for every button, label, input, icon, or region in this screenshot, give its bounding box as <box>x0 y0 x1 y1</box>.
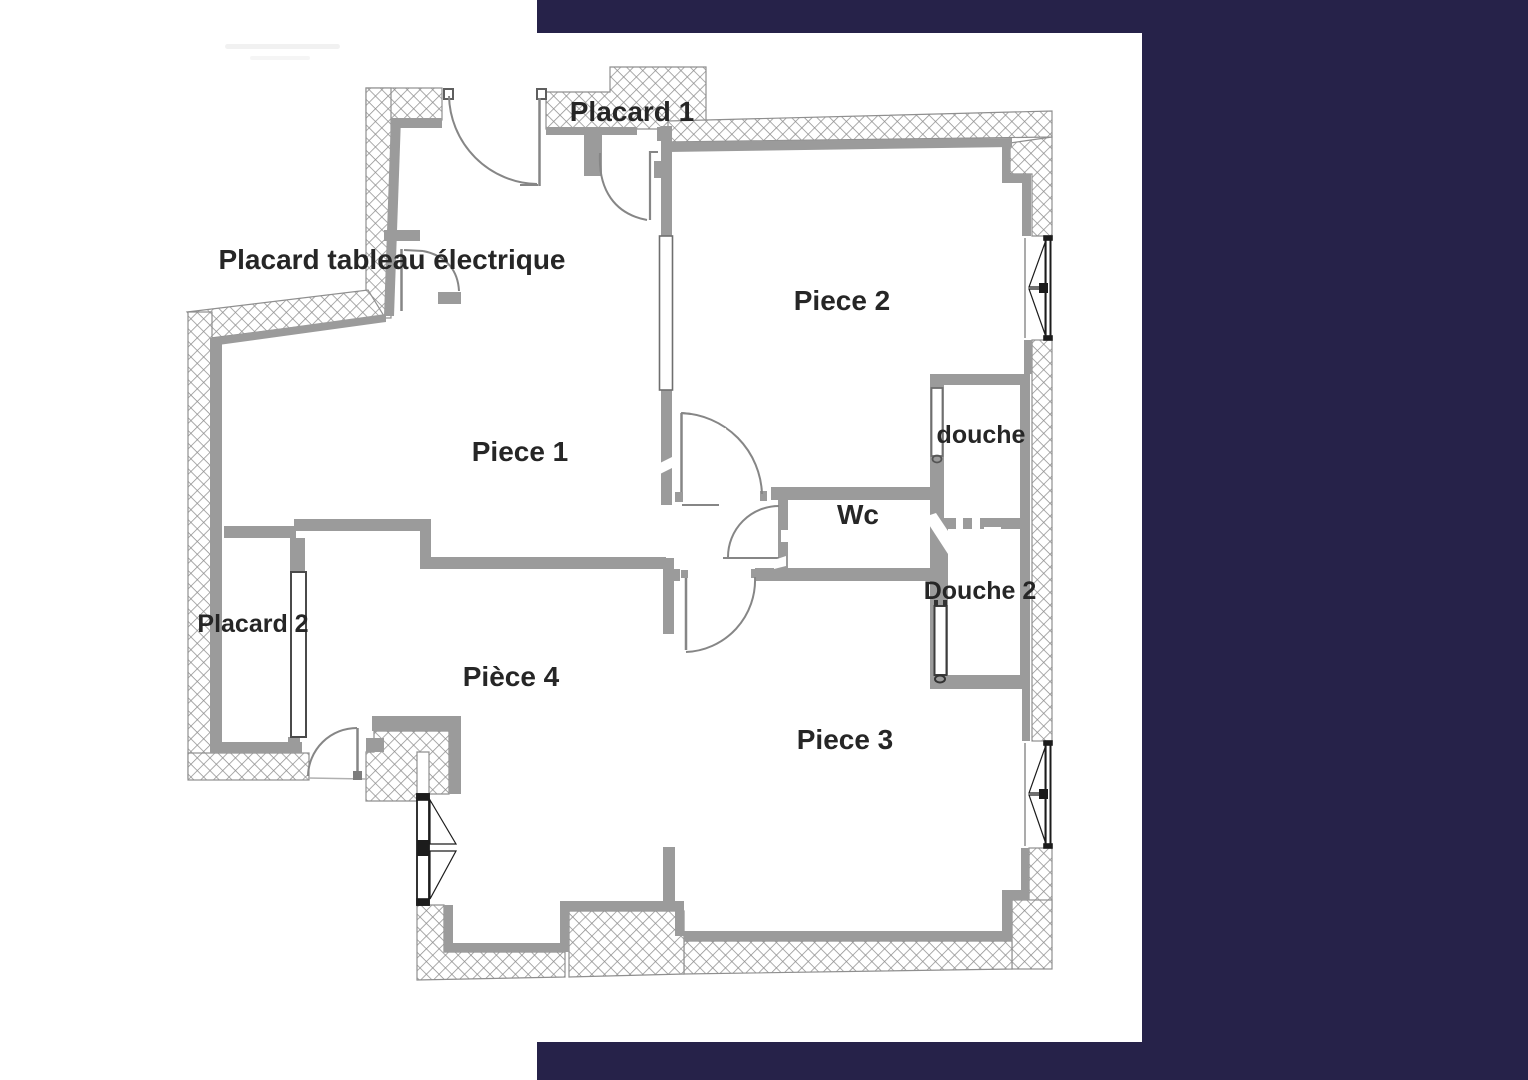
svg-text:Placard tableau électrique: Placard tableau électrique <box>218 244 565 275</box>
svg-text:Piece 1: Piece 1 <box>472 436 569 467</box>
svg-text:Placard 1: Placard 1 <box>570 96 695 127</box>
svg-text:Wc: Wc <box>837 499 879 530</box>
svg-text:Pièce 4: Pièce 4 <box>463 661 560 692</box>
svg-text:Piece 2: Piece 2 <box>794 285 891 316</box>
svg-text:douche: douche <box>937 421 1026 449</box>
svg-text:Douche 2: Douche 2 <box>924 577 1037 605</box>
svg-text:Placard 2: Placard 2 <box>197 610 308 638</box>
svg-text:Piece 3: Piece 3 <box>797 724 894 755</box>
